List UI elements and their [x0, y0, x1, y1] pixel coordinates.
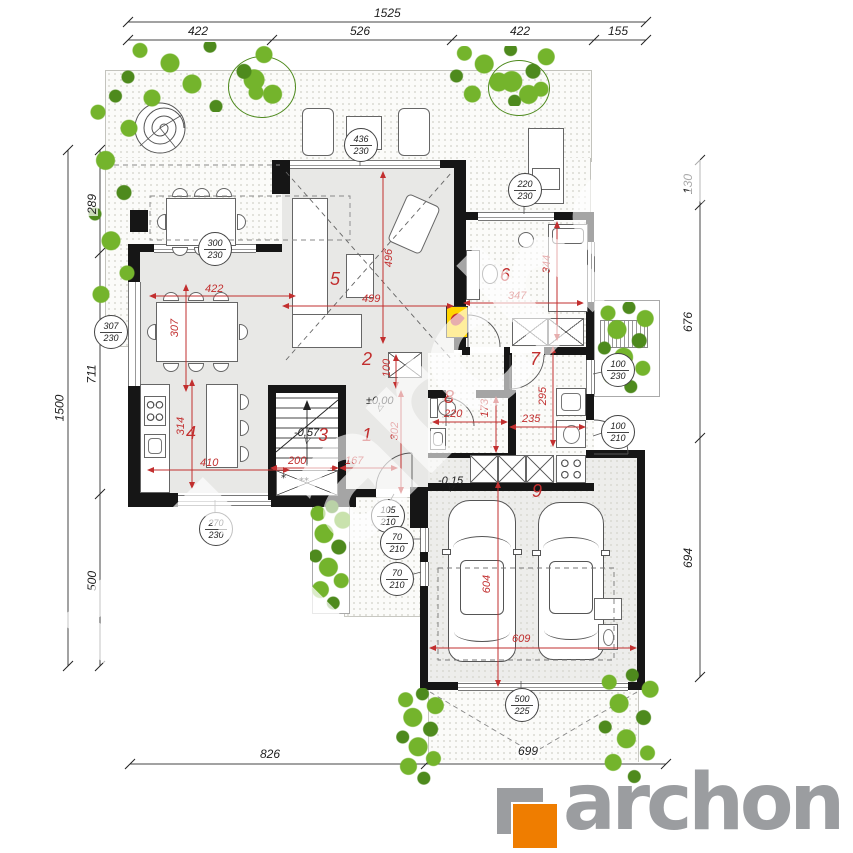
opening-height: 230: [514, 190, 535, 201]
window-220: [478, 212, 554, 221]
room-number-8: 8: [444, 388, 454, 406]
car-rear-window: [454, 622, 509, 642]
opening-width: 70: [392, 568, 402, 578]
car-roof: [549, 561, 593, 614]
plants-west-planter: [310, 500, 350, 612]
wall: [508, 390, 516, 455]
wall: [338, 390, 346, 497]
level-garage: -0,15▽: [438, 476, 463, 491]
wall: [256, 244, 282, 252]
car: [538, 502, 604, 660]
cabinet: [498, 455, 526, 483]
dim-total-width: 1525: [372, 7, 403, 19]
logo-frame-icon: [497, 788, 511, 834]
room-number-1: 1: [362, 426, 372, 444]
dim-garage-height: 604: [481, 575, 493, 593]
opening-label-side-door: 100 210: [601, 415, 635, 449]
chair: [172, 188, 188, 197]
kitchen-island: [206, 384, 238, 468]
wall: [420, 586, 428, 690]
car-mirror: [513, 549, 522, 555]
window-100: [586, 360, 595, 394]
glazing-70b: [420, 562, 429, 586]
wall: [637, 458, 645, 690]
opening-width: 105: [380, 505, 395, 515]
opening-height: 230: [205, 529, 226, 540]
outdoor-armchair: [302, 108, 334, 156]
dim-living-height: 496: [383, 249, 395, 267]
dim-corridor-width: 100: [381, 359, 393, 377]
flame-icon: [448, 311, 465, 328]
toilet-tank: [430, 398, 438, 418]
wall: [268, 385, 276, 500]
opening-width: 100: [610, 359, 625, 369]
wall: [410, 487, 428, 528]
window-270: [178, 495, 271, 506]
wall: [586, 394, 594, 420]
cabinet: [470, 455, 498, 483]
dim-total-height: 1500: [53, 393, 65, 424]
kitchen-sink: [144, 434, 166, 458]
dim-utility-height: 295: [537, 387, 549, 405]
opening-height: 230: [350, 145, 371, 156]
dim-kitchen-width: 410: [200, 457, 218, 469]
opening-label-entry-glazing-2: 70 210: [380, 562, 414, 596]
dim-top-seg: 422: [508, 25, 532, 37]
coffee-table: [346, 254, 374, 298]
wall: [544, 347, 586, 355]
dim-bottom-seg: 699: [516, 745, 540, 757]
opening-label-dining-window-north: 300 230: [198, 232, 232, 266]
sofa-chaise: [292, 314, 362, 348]
room-number-5: 5: [330, 270, 340, 288]
level-triangle-icon: ▽: [294, 439, 319, 443]
level-hall: ±0,00▽: [366, 396, 393, 411]
wall: [586, 450, 645, 458]
room-number-3: 3: [318, 426, 328, 444]
wall: [128, 386, 140, 507]
room-number-4: 4: [186, 424, 196, 442]
room-number-2: 2: [362, 350, 372, 368]
chair: [216, 188, 232, 197]
opening-label-entry-glazing-1: 70 210: [380, 526, 414, 560]
cooktop: [144, 396, 166, 426]
washbasin: [430, 428, 446, 450]
opening-height: 230: [100, 332, 121, 343]
chair: [163, 292, 179, 301]
car-rear-window: [544, 621, 598, 641]
room-number-7: 7: [530, 350, 540, 368]
utility-sink: [556, 388, 586, 416]
level-stairs: -0,57▽: [294, 428, 319, 443]
dim-bath-width: 220: [444, 408, 462, 420]
dim-bedroom-width: 347: [508, 290, 526, 302]
wall: [454, 220, 466, 308]
opening-width: 300: [207, 238, 222, 248]
dim-utility-width: 235: [522, 413, 540, 425]
opening-width: 220: [517, 179, 532, 189]
wall: [268, 385, 346, 393]
car-mirror: [442, 549, 451, 555]
dim-dining-height: 307: [169, 319, 181, 337]
level-triangle-icon: ▽: [366, 407, 393, 411]
dim-stairs-width: 200: [288, 455, 306, 467]
wardrobe: [512, 318, 548, 346]
opening-width: 100: [610, 421, 625, 431]
wall: [504, 353, 512, 390]
opening-label-dining-window-west: 307 230: [94, 315, 128, 349]
glazing-70a: [420, 528, 429, 552]
dim-garage-width: 609: [512, 633, 530, 645]
plants-driveway-left: [396, 688, 444, 786]
opening-height: 230: [607, 370, 628, 381]
dim-bath-height: 173: [479, 399, 491, 417]
bedside-table: [518, 232, 534, 248]
cabinet: [526, 455, 554, 483]
closet-mark: *: [281, 473, 286, 484]
dim-left-seg: 289: [86, 192, 98, 216]
dim-top-seg: 526: [348, 25, 372, 37]
dim-bottom-seg: 826: [258, 748, 282, 760]
opening-height: 210: [607, 432, 628, 443]
room-number-6: 6: [500, 266, 510, 284]
desk: [466, 250, 480, 300]
desk-chair: [482, 264, 498, 284]
wall: [454, 160, 466, 220]
logo-orange-square-icon: [513, 804, 557, 848]
opening-height: 210: [386, 543, 407, 554]
opening-label-living-window: 436 230: [344, 128, 378, 162]
opening-height: 230: [204, 249, 225, 260]
opening-width: 436: [353, 134, 368, 144]
plants-top-right: [438, 46, 570, 106]
car-mirror: [532, 550, 541, 556]
opening-width: 307: [103, 321, 118, 331]
opening-label-bedroom-window: 220 230: [508, 173, 542, 207]
opening-label-garage-door: 500 225: [505, 688, 539, 722]
room-number-9: 9: [532, 482, 542, 500]
wall: [420, 552, 428, 562]
floor-plan: * **: [0, 0, 853, 853]
dim-top-seg: 422: [186, 25, 210, 37]
utility-hob: [556, 455, 586, 483]
dim-left-seg: 711: [86, 362, 98, 385]
opening-width: 70: [392, 532, 402, 542]
archon-logo: archon: [497, 788, 847, 850]
opening-height: 210: [386, 579, 407, 590]
wardrobe: [548, 318, 584, 346]
opening-label-kitchen-window: 270 230: [199, 512, 233, 546]
dim-bedroom-height: 344: [541, 255, 553, 273]
car-windshield: [543, 537, 599, 560]
opening-width: 500: [514, 694, 529, 704]
chair: [194, 188, 210, 197]
dim-living-width: 499: [362, 293, 380, 305]
boiler: [594, 598, 622, 620]
level-triangle-icon: ▽: [438, 487, 463, 491]
dim-dining-width: 422: [205, 283, 223, 295]
closet-mark: **: [299, 476, 309, 487]
dim-right-seg: 130: [682, 172, 694, 196]
dim-right-seg: 676: [682, 310, 694, 334]
dim-hall-height: 302: [389, 422, 401, 440]
chair: [147, 324, 156, 340]
dim-right-seg: 694: [682, 546, 694, 570]
opening-label-utility-window: 100 230: [601, 353, 635, 387]
water-heater: [598, 624, 618, 650]
outdoor-armchair: [398, 108, 430, 156]
dim-hall-width: 167: [345, 455, 363, 467]
fireplace: [446, 306, 468, 338]
wall: [272, 160, 290, 194]
wall: [462, 347, 470, 355]
logo-wordmark: archon: [563, 764, 841, 842]
chair: [188, 292, 204, 301]
chair: [157, 214, 166, 230]
wall: [128, 493, 178, 507]
dim-top-seg: 155: [606, 25, 630, 37]
opening-width: 270: [208, 518, 223, 528]
car-windshield: [453, 536, 511, 559]
washing-machine: [556, 420, 586, 448]
dim-left-seg: 500: [86, 569, 98, 593]
opening-height: 225: [511, 705, 532, 716]
car-mirror: [601, 550, 610, 556]
pillow: [552, 228, 584, 244]
